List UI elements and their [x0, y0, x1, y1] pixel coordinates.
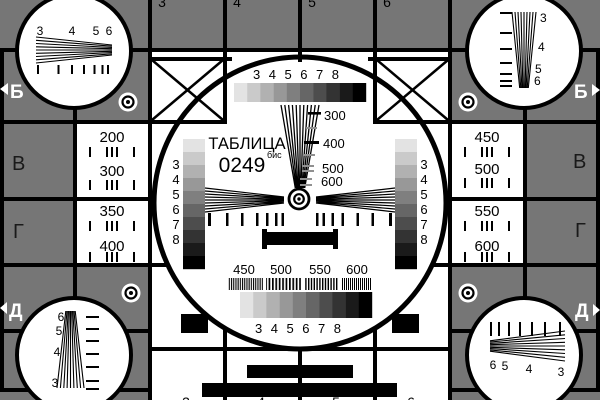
svg-text:5: 5 — [332, 394, 340, 400]
svg-text:3: 3 — [558, 365, 565, 379]
svg-text:6: 6 — [420, 202, 427, 217]
svg-text:Б: Б — [574, 82, 588, 103]
svg-text:7: 7 — [172, 217, 179, 232]
svg-text:6: 6 — [172, 202, 179, 217]
grayscale-staircase-right — [395, 139, 417, 269]
svg-text:Б: Б — [10, 82, 24, 103]
svg-text:550: 550 — [474, 203, 499, 220]
svg-text:8: 8 — [420, 232, 427, 247]
svg-text:450: 450 — [233, 262, 255, 277]
lower-left-black-patch — [181, 314, 208, 333]
svg-text:600: 600 — [321, 174, 343, 189]
test-card-canvas: 3 4 5 6 7 8 3 4 5 6 7 8 3 4 5 6 7 8 — [0, 0, 600, 400]
target-top-left — [119, 93, 138, 112]
svg-text:350: 350 — [99, 203, 124, 220]
bottom-staircase-digits: 3 4 5 6 7 8 — [255, 321, 341, 336]
bottom-bar-long — [202, 383, 397, 397]
svg-text:5: 5 — [172, 187, 179, 202]
grayscale-staircase-left — [183, 139, 205, 269]
grayscale-staircase-bottom — [240, 292, 372, 318]
card-number: 0249 — [219, 154, 266, 177]
svg-text:6: 6 — [383, 0, 391, 10]
target-bottom-right — [459, 284, 478, 303]
edge-letter-g-right: Г — [575, 220, 586, 242]
svg-text:500: 500 — [474, 161, 499, 178]
svg-text:6: 6 — [106, 24, 113, 38]
svg-text:4: 4 — [233, 0, 241, 10]
svg-text:5: 5 — [420, 187, 427, 202]
svg-text:4: 4 — [69, 24, 76, 38]
svg-text:200: 200 — [99, 129, 124, 146]
svg-text:3: 3 — [37, 24, 44, 38]
svg-text:4: 4 — [172, 172, 179, 187]
svg-text:450: 450 — [474, 129, 499, 146]
svg-text:8: 8 — [172, 232, 179, 247]
svg-text:3: 3 — [172, 157, 179, 172]
svg-text:5: 5 — [308, 0, 316, 10]
svg-text:600: 600 — [346, 262, 368, 277]
edge-letter-v-left: В — [12, 153, 25, 175]
left-staircase-digits: 3 4 5 6 7 8 — [172, 157, 179, 247]
svg-text:5: 5 — [56, 324, 63, 338]
top-staircase-digits: 3 4 5 6 7 8 — [253, 67, 339, 82]
svg-text:3: 3 — [52, 376, 59, 390]
bottom-bar-short — [247, 365, 353, 378]
center-wedge-labels: 300 400 500 600 — [321, 108, 346, 189]
target-bottom-left — [122, 284, 141, 303]
svg-text:4: 4 — [420, 172, 427, 187]
svg-text:300: 300 — [324, 108, 346, 123]
svg-text:5: 5 — [502, 359, 509, 373]
svg-text:5: 5 — [93, 24, 100, 38]
svg-text:Д: Д — [575, 301, 589, 322]
svg-text:Д: Д — [9, 301, 23, 322]
svg-text:4: 4 — [257, 394, 265, 400]
grayscale-staircase-top — [234, 83, 366, 102]
bottom-frequency-gratings — [228, 278, 372, 290]
svg-text:6: 6 — [58, 310, 65, 324]
svg-text:400: 400 — [323, 136, 345, 151]
svg-text:500: 500 — [270, 262, 292, 277]
corner-circle-bottom-right — [467, 298, 581, 400]
edge-letter-g-left: Г — [13, 221, 24, 243]
target-top-right — [459, 93, 478, 112]
svg-text:6: 6 — [534, 74, 541, 88]
svg-text:300: 300 — [99, 163, 124, 180]
svg-text:4: 4 — [526, 362, 533, 376]
svg-text:3: 3 — [540, 11, 547, 25]
svg-text:3: 3 — [158, 0, 166, 10]
right-staircase-digits: 3 4 5 6 7 8 — [420, 157, 427, 247]
svg-text:7: 7 — [420, 217, 427, 232]
card-number-suffix: бис — [267, 150, 282, 160]
svg-text:3: 3 — [420, 157, 427, 172]
svg-text:550: 550 — [309, 262, 331, 277]
lower-right-black-patch — [392, 314, 419, 333]
svg-text:6: 6 — [490, 358, 497, 372]
svg-text:4: 4 — [538, 40, 545, 54]
svg-text:3: 3 — [182, 394, 190, 400]
test-card-0249: 3 4 5 6 7 8 3 4 5 6 7 8 3 4 5 6 7 8 — [0, 0, 600, 400]
svg-text:4: 4 — [54, 345, 61, 359]
svg-text:6: 6 — [407, 394, 415, 400]
edge-letter-v-right: В — [573, 151, 586, 173]
